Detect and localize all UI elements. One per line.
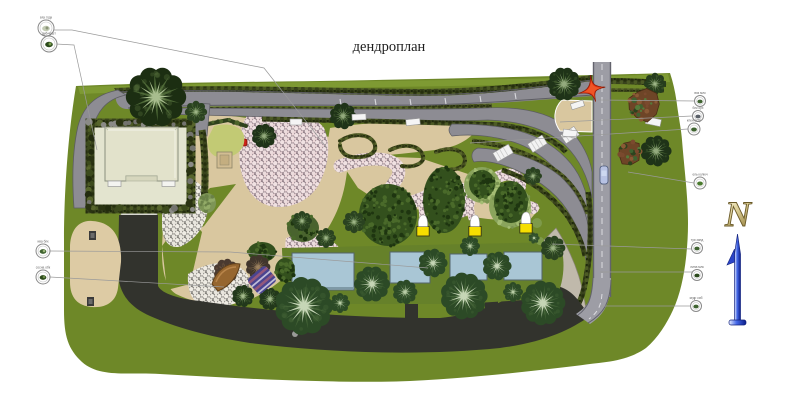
svg-text:вяз глдк: вяз глдк <box>40 16 53 20</box>
svg-text:сосна обк: сосна обк <box>36 266 51 270</box>
svg-text:дуб чршт: дуб чршт <box>42 32 56 36</box>
svg-text:блк орх: блк орх <box>693 106 704 110</box>
svg-text:кедр сиб: кедр сиб <box>690 296 703 300</box>
svg-text:вяз млк: вяз млк <box>694 91 706 95</box>
svg-text:ель колюч: ель колюч <box>692 173 707 177</box>
svg-text:липа млк: липа млк <box>690 265 704 269</box>
svg-text:N: N <box>724 194 753 234</box>
svg-text:клен остр: клен остр <box>687 119 702 123</box>
svg-text:ива блк: ива блк <box>37 240 49 244</box>
svg-text:дендроплан: дендроплан <box>353 39 426 55</box>
svg-text:туя запд: туя запд <box>691 238 704 242</box>
